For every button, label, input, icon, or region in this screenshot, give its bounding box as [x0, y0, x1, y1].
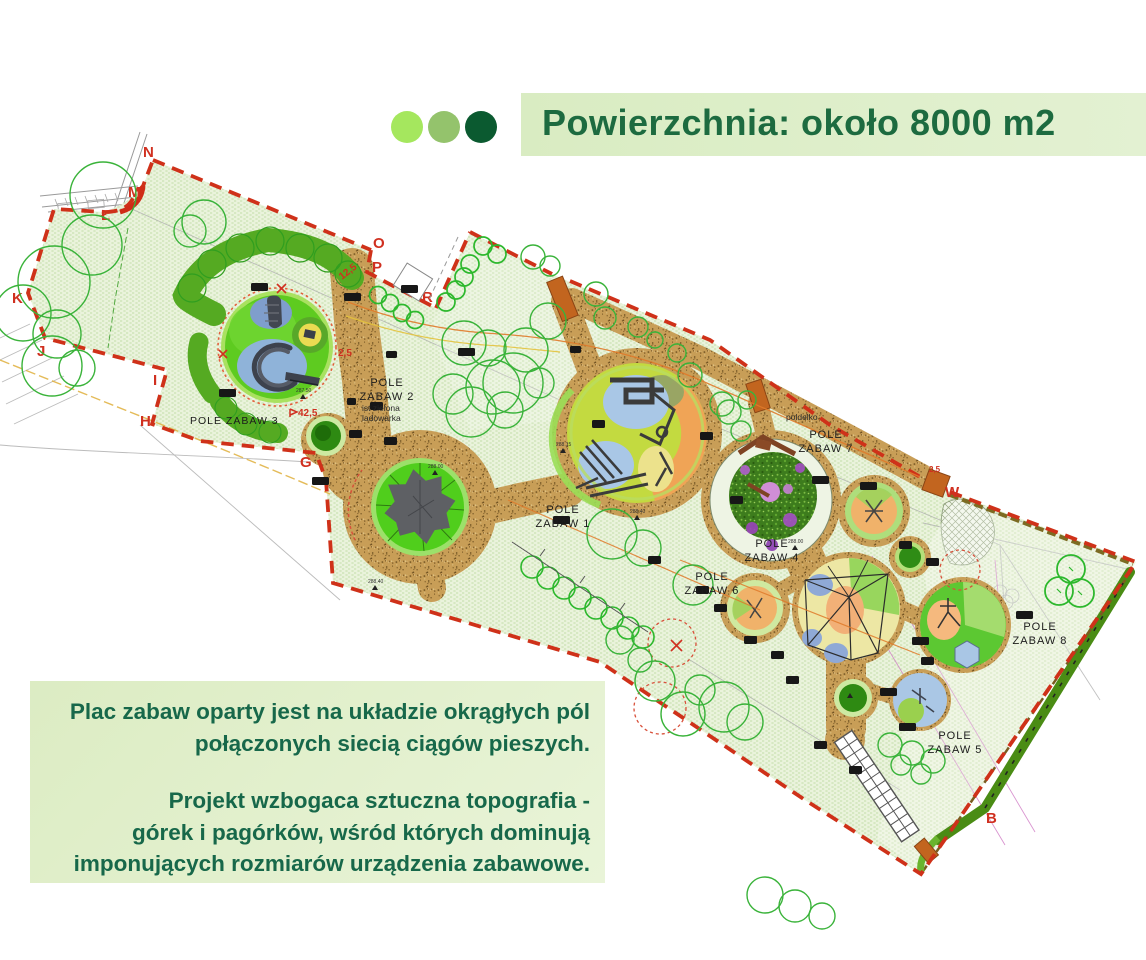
svg-text:POLE: POLE	[546, 504, 579, 516]
svg-text:ladowarka: ladowarka	[362, 413, 401, 423]
svg-text:POLE ZABAW 3: POLE ZABAW 3	[190, 415, 279, 427]
svg-text:288.15: 288.15	[556, 442, 572, 448]
svg-text:2,5: 2,5	[929, 465, 941, 474]
svg-text:287.50: 287.50	[296, 388, 312, 394]
svg-text:ZABAW 6: ZABAW 6	[685, 585, 740, 597]
svg-text:ZABAW 2: ZABAW 2	[360, 391, 415, 403]
svg-text:288.40: 288.40	[368, 579, 384, 585]
svg-text:POLE: POLE	[755, 538, 788, 550]
svg-text:POLE: POLE	[695, 571, 728, 583]
svg-text:ZABAW 4: ZABAW 4	[745, 552, 800, 564]
svg-text:ZABAW 5: ZABAW 5	[928, 744, 983, 756]
svg-text:N: N	[143, 144, 154, 161]
svg-text:I: I	[153, 372, 157, 389]
svg-text:O: O	[373, 235, 385, 252]
svg-text:G: G	[300, 454, 312, 471]
svg-text:288.00: 288.00	[788, 539, 804, 545]
svg-text:ZABAW 1: ZABAW 1	[536, 518, 591, 530]
svg-text:POLE: POLE	[370, 377, 403, 389]
svg-text:P: P	[372, 259, 382, 276]
svg-text:42,5: 42,5	[298, 408, 318, 419]
svg-text:ist zielona: ist zielona	[362, 403, 400, 413]
svg-text:Ł: Ł	[101, 207, 110, 224]
svg-text:ZABAW 7: ZABAW 7	[799, 443, 854, 455]
svg-text:POLE: POLE	[809, 429, 842, 441]
svg-text:W: W	[945, 484, 960, 501]
svg-text:POLE: POLE	[1023, 621, 1056, 633]
svg-text:B: B	[986, 810, 997, 827]
svg-text:2,5: 2,5	[338, 348, 352, 359]
svg-text:288.40: 288.40	[630, 509, 646, 515]
svg-text:H: H	[140, 413, 151, 430]
svg-text:poldelko: poldelko	[786, 412, 818, 422]
svg-text:288.00: 288.00	[428, 464, 444, 470]
svg-text:ZABAW 8: ZABAW 8	[1013, 635, 1068, 647]
svg-text:POLE: POLE	[938, 730, 971, 742]
